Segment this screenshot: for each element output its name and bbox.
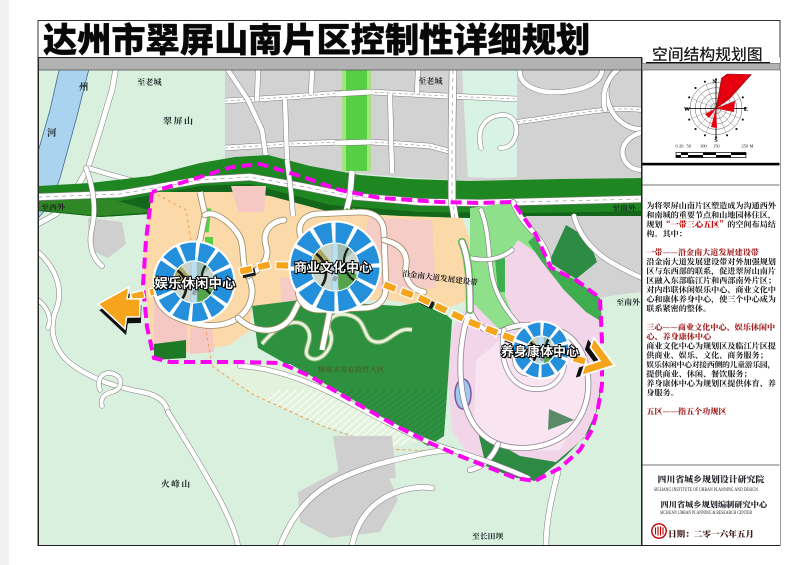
svg-text:W: W <box>684 106 691 113</box>
svg-text:250: 250 <box>742 144 749 149</box>
svg-text:E: E <box>744 106 748 113</box>
svg-text:150: 150 <box>713 144 720 149</box>
svg-text:SICHANG INSTITUTE OF URBAN PLA: SICHANG INSTITUTE OF URBAN PLANNING AND … <box>654 487 758 493</box>
svg-text:SICHUAN URBAN PLANNING & RESEA: SICHUAN URBAN PLANNING & RESEARCH CENTER <box>660 510 752 516</box>
svg-text:M: M <box>750 144 754 149</box>
svg-text:100: 100 <box>700 144 707 149</box>
svg-text:N: N <box>712 79 717 86</box>
